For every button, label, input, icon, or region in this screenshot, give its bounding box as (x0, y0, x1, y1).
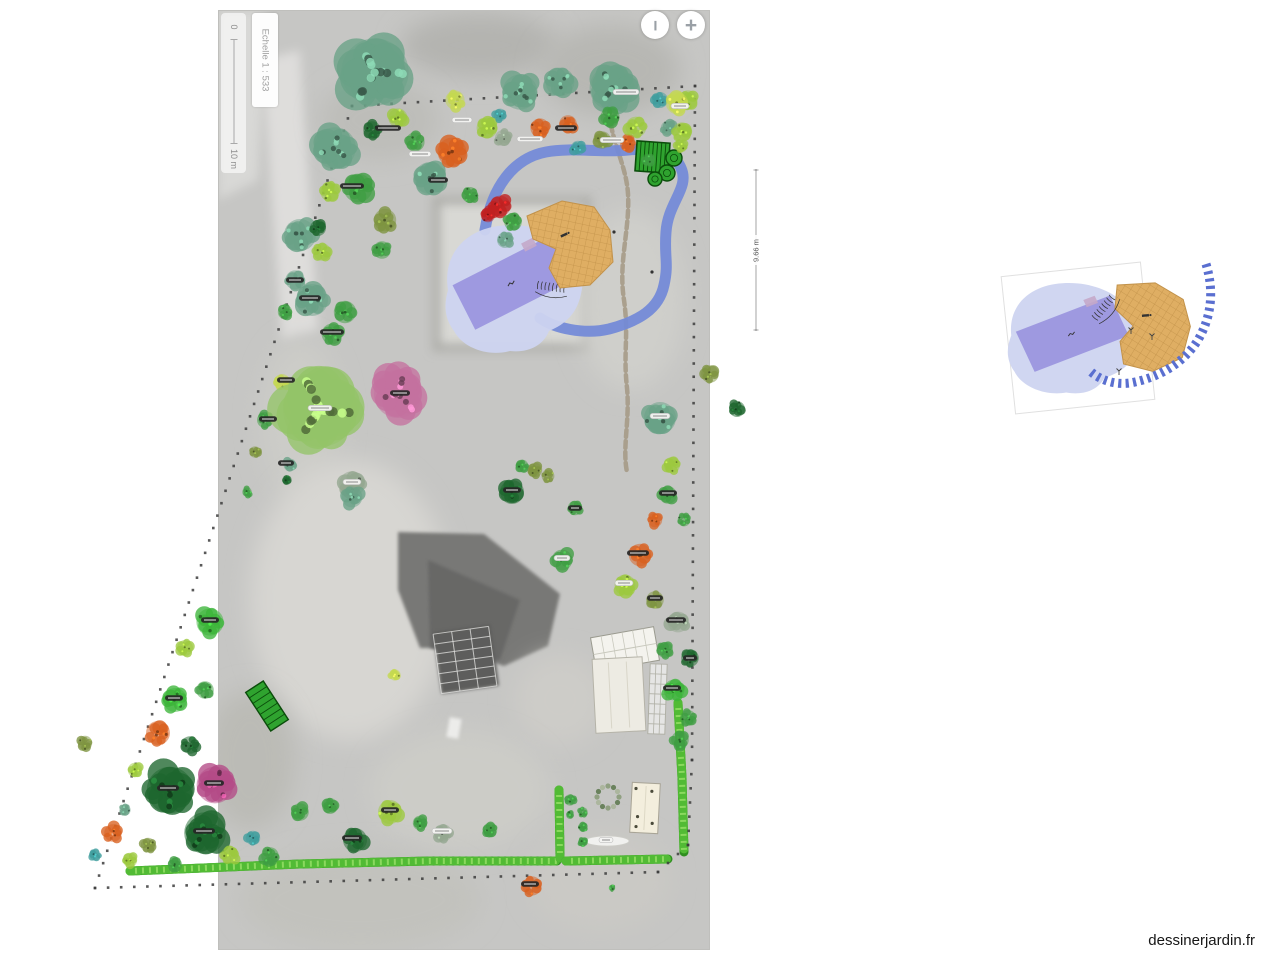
measurement-line: 9.66 m (751, 169, 761, 331)
plant[interactable] (139, 838, 157, 854)
potting-table[interactable] (630, 782, 661, 833)
plant[interactable] (175, 639, 194, 658)
plant-label[interactable] (204, 780, 224, 785)
zoom-out-button[interactable]: − (641, 11, 669, 39)
plant-label[interactable] (390, 390, 410, 395)
plant-label[interactable] (599, 837, 613, 842)
plant[interactable] (119, 803, 130, 815)
plant-label[interactable] (157, 785, 179, 790)
plant-label[interactable] (342, 835, 362, 840)
plant-label[interactable] (165, 695, 183, 700)
plant-label[interactable] (650, 413, 670, 418)
pool-inset-drawing[interactable] (1001, 262, 1211, 414)
plant-label[interactable] (666, 617, 686, 622)
plant-label[interactable] (277, 377, 295, 382)
plant-label[interactable] (568, 505, 582, 510)
plant[interactable] (168, 856, 182, 873)
round-planter[interactable] (648, 172, 662, 186)
plant-label[interactable] (554, 555, 570, 560)
plant-label[interactable] (299, 295, 321, 300)
garden-shed[interactable] (592, 657, 646, 734)
plant-label[interactable] (452, 117, 472, 122)
plant-label[interactable] (683, 655, 697, 660)
scale-zero-label: 0 (229, 24, 239, 29)
scale-bar: 0 10 m (221, 13, 246, 173)
plant-label[interactable] (375, 125, 401, 130)
plant-label[interactable] (320, 329, 344, 334)
plant-label[interactable] (615, 580, 633, 585)
plant[interactable] (729, 399, 746, 417)
scale-ten-label: 10 m (229, 149, 239, 169)
plant-label[interactable] (428, 177, 448, 182)
plant[interactable] (88, 848, 102, 861)
garden-designer-app: 9.66 m 0 10 m Echelle 1 : 533 − + dessin… (0, 0, 1280, 960)
scale-ratio-label: Echelle 1 : 533 (260, 29, 271, 92)
zoom-in-icon: + (685, 15, 697, 36)
plant-label[interactable] (659, 490, 677, 495)
plant-label[interactable] (193, 828, 215, 833)
plant[interactable] (194, 681, 213, 699)
zoom-in-button[interactable]: + (677, 11, 705, 39)
plant-label[interactable] (381, 807, 399, 812)
plant-label[interactable] (201, 617, 219, 622)
garden-plan-canvas[interactable]: 9.66 m (0, 0, 1280, 960)
plant-label[interactable] (343, 479, 361, 484)
plant-label[interactable] (409, 151, 431, 156)
scale-tick-top (230, 39, 237, 40)
plant-label[interactable] (600, 137, 624, 142)
plant-label[interactable] (432, 828, 452, 833)
plant-label[interactable] (308, 405, 332, 410)
plant-label[interactable] (259, 416, 277, 421)
plant-label[interactable] (503, 487, 521, 492)
plant-label[interactable] (340, 183, 364, 188)
plant-label[interactable] (613, 89, 639, 94)
plant-label[interactable] (521, 881, 539, 886)
plant[interactable] (181, 736, 202, 756)
watermark: dessinerjardin.fr (1040, 932, 1255, 949)
scale-ratio-badge: Echelle 1 : 533 (252, 13, 278, 107)
plant-label[interactable] (671, 103, 689, 108)
zoom-out-icon: − (645, 19, 664, 30)
plant[interactable] (128, 762, 144, 777)
scale-bar-line (233, 39, 234, 143)
plant-label[interactable] (517, 136, 543, 141)
plant-label[interactable] (663, 685, 681, 690)
scale-tick-bottom (230, 143, 237, 144)
plant-label[interactable] (627, 550, 649, 555)
plant[interactable] (145, 720, 170, 746)
plant-label[interactable] (278, 460, 294, 465)
measurement-label: 9.66 m (752, 239, 761, 262)
plant[interactable] (76, 736, 92, 752)
plant-label[interactable] (286, 277, 304, 282)
plant[interactable] (101, 821, 123, 844)
plant[interactable] (334, 32, 414, 110)
plant-label[interactable] (647, 595, 663, 600)
plant-label[interactable] (555, 125, 577, 130)
